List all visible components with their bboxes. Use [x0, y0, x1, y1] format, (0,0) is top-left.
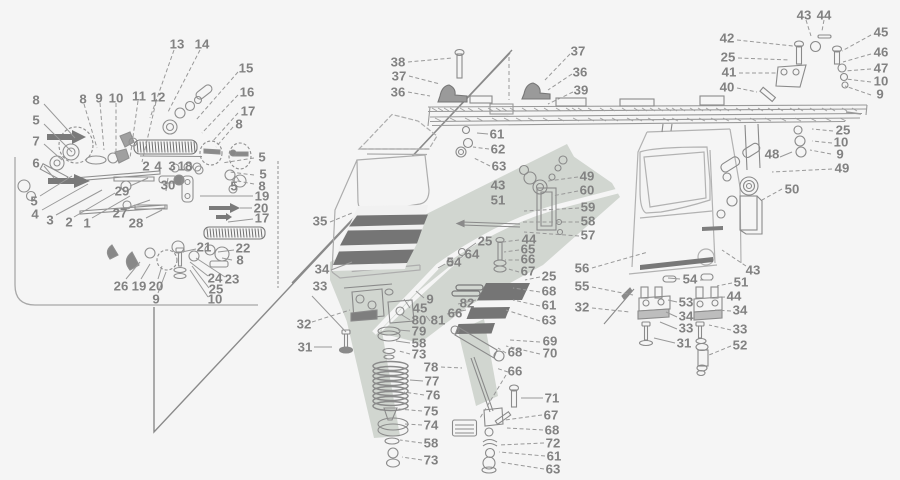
svg-text:9: 9 — [426, 292, 433, 307]
svg-text:44: 44 — [817, 8, 832, 23]
svg-text:37: 37 — [392, 69, 407, 84]
svg-text:36: 36 — [391, 85, 406, 100]
svg-text:25: 25 — [721, 50, 736, 65]
svg-text:70: 70 — [543, 346, 558, 361]
svg-text:64: 64 — [465, 247, 480, 262]
svg-text:73: 73 — [424, 453, 439, 468]
svg-text:5: 5 — [230, 179, 237, 194]
svg-text:46: 46 — [874, 45, 889, 60]
svg-text:68: 68 — [542, 284, 557, 299]
svg-text:39: 39 — [574, 83, 589, 98]
svg-text:48: 48 — [765, 147, 780, 162]
svg-text:9: 9 — [95, 91, 102, 106]
svg-text:28: 28 — [129, 216, 144, 231]
svg-text:9: 9 — [876, 87, 883, 102]
svg-text:19: 19 — [132, 279, 147, 294]
svg-text:40: 40 — [720, 80, 735, 95]
svg-text:18: 18 — [178, 159, 193, 174]
svg-text:4: 4 — [154, 159, 162, 174]
svg-text:17: 17 — [241, 104, 256, 119]
svg-text:67: 67 — [521, 264, 536, 279]
svg-text:54: 54 — [683, 272, 698, 287]
svg-text:7: 7 — [32, 134, 39, 149]
svg-text:30: 30 — [161, 178, 176, 193]
svg-text:49: 49 — [580, 169, 595, 184]
svg-text:25: 25 — [542, 269, 557, 284]
svg-text:38: 38 — [391, 55, 406, 70]
svg-text:45: 45 — [874, 25, 889, 40]
svg-text:57: 57 — [581, 228, 596, 243]
svg-text:29: 29 — [115, 184, 130, 199]
svg-text:8: 8 — [235, 117, 242, 132]
svg-text:66: 66 — [448, 306, 463, 321]
svg-text:55: 55 — [575, 279, 590, 294]
svg-text:32: 32 — [575, 300, 590, 315]
svg-text:53: 53 — [679, 295, 694, 310]
svg-text:56: 56 — [575, 261, 590, 276]
svg-text:51: 51 — [734, 275, 749, 290]
svg-text:8: 8 — [236, 253, 243, 268]
svg-text:32: 32 — [297, 317, 312, 332]
svg-text:61: 61 — [490, 127, 505, 142]
svg-text:14: 14 — [195, 37, 210, 52]
svg-text:34: 34 — [733, 303, 748, 318]
svg-text:41: 41 — [722, 65, 737, 80]
svg-text:31: 31 — [677, 336, 692, 351]
svg-text:10: 10 — [208, 292, 223, 307]
svg-text:26: 26 — [114, 279, 129, 294]
svg-text:52: 52 — [733, 338, 748, 353]
svg-text:43: 43 — [797, 8, 812, 23]
svg-text:60: 60 — [580, 183, 595, 198]
svg-text:71: 71 — [545, 391, 560, 406]
svg-text:23: 23 — [225, 272, 240, 287]
svg-text:67: 67 — [544, 408, 559, 423]
svg-text:33: 33 — [733, 322, 748, 337]
svg-text:35: 35 — [313, 214, 328, 229]
svg-text:58: 58 — [581, 214, 596, 229]
svg-text:77: 77 — [425, 374, 440, 389]
svg-text:50: 50 — [785, 182, 800, 197]
svg-text:81: 81 — [431, 313, 446, 328]
svg-text:62: 62 — [491, 142, 506, 157]
svg-text:11: 11 — [132, 89, 146, 104]
svg-text:63: 63 — [546, 462, 561, 477]
svg-text:66: 66 — [508, 364, 523, 379]
svg-text:43: 43 — [491, 178, 506, 193]
svg-text:8: 8 — [79, 92, 86, 107]
svg-text:63: 63 — [492, 159, 507, 174]
svg-text:9: 9 — [836, 147, 843, 162]
svg-text:5: 5 — [258, 150, 265, 165]
svg-text:1: 1 — [83, 216, 90, 231]
svg-text:17: 17 — [255, 211, 270, 226]
svg-text:6: 6 — [32, 156, 39, 171]
svg-text:37: 37 — [571, 44, 586, 59]
svg-text:54: 54 — [447, 255, 462, 270]
svg-text:16: 16 — [240, 85, 255, 100]
svg-text:36: 36 — [573, 65, 588, 80]
svg-text:31: 31 — [298, 340, 313, 355]
svg-text:3: 3 — [168, 159, 175, 174]
svg-text:51: 51 — [491, 193, 506, 208]
svg-text:49: 49 — [835, 161, 850, 176]
svg-text:3: 3 — [46, 213, 53, 228]
svg-text:75: 75 — [424, 404, 439, 419]
svg-text:12: 12 — [151, 90, 166, 105]
svg-text:2: 2 — [65, 215, 72, 230]
svg-text:4: 4 — [31, 207, 39, 222]
svg-text:21: 21 — [197, 240, 212, 255]
svg-text:34: 34 — [315, 262, 330, 277]
svg-text:76: 76 — [426, 388, 441, 403]
svg-text:25: 25 — [478, 234, 493, 249]
svg-text:10: 10 — [109, 91, 124, 106]
svg-text:61: 61 — [542, 298, 557, 313]
svg-text:33: 33 — [313, 279, 328, 294]
svg-text:8: 8 — [32, 93, 39, 108]
svg-text:27: 27 — [113, 206, 128, 221]
svg-text:68: 68 — [508, 345, 523, 360]
svg-text:13: 13 — [170, 37, 185, 52]
svg-text:5: 5 — [32, 113, 39, 128]
svg-text:42: 42 — [720, 31, 735, 46]
svg-text:63: 63 — [542, 313, 557, 328]
svg-text:44: 44 — [727, 289, 742, 304]
svg-text:33: 33 — [679, 321, 694, 336]
svg-text:74: 74 — [424, 418, 439, 433]
svg-text:15: 15 — [239, 61, 254, 76]
svg-text:2: 2 — [142, 159, 149, 174]
svg-text:9: 9 — [152, 292, 159, 307]
svg-text:58: 58 — [424, 436, 439, 451]
svg-text:59: 59 — [581, 200, 596, 215]
svg-text:78: 78 — [424, 360, 439, 375]
